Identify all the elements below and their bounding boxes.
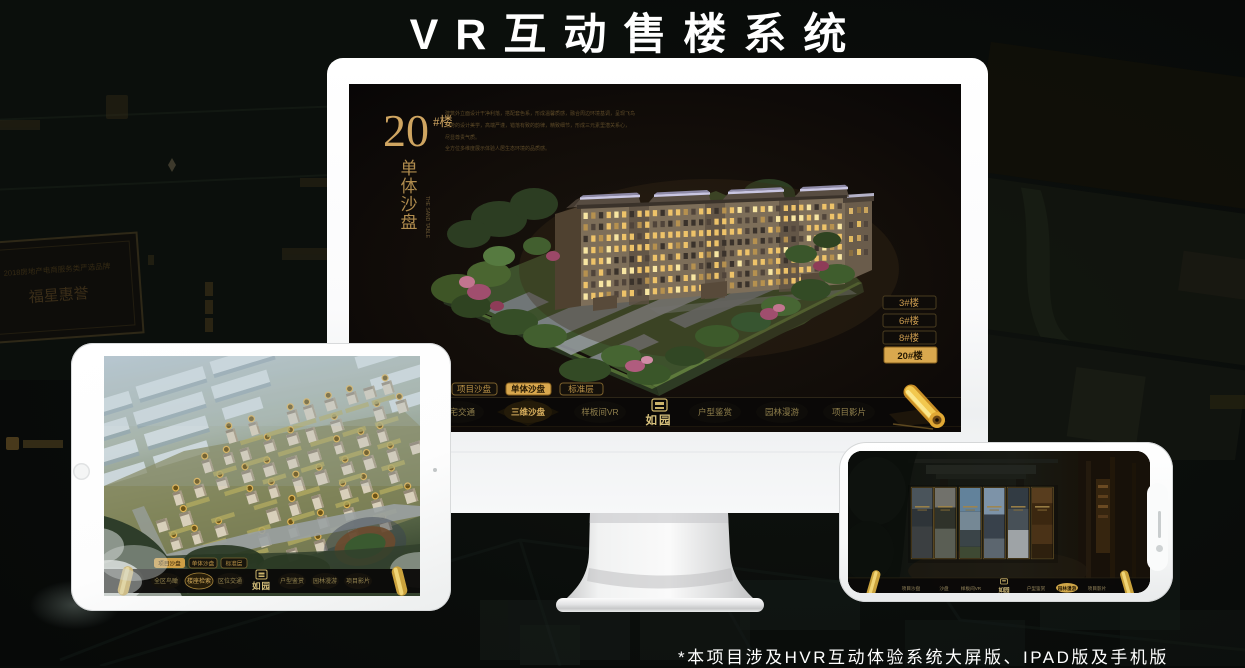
- svg-text:户型鉴赏: 户型鉴赏: [280, 577, 304, 585]
- svg-text:20#楼: 20#楼: [897, 350, 923, 362]
- svg-text:THE SAND TABLE: THE SAND TABLE: [424, 196, 430, 239]
- svg-text:项目影片: 项目影片: [832, 407, 866, 417]
- svg-text:之势的设计美学，高端严谨，错落有致的韵律，精致细节，形成三元: 之势的设计美学，高端严谨，错落有致的韵律，精致细节，形成三元素里潜关系心，: [445, 122, 630, 129]
- svg-text:园林漫游: 园林漫游: [1058, 585, 1077, 592]
- svg-text:6#楼: 6#楼: [899, 315, 920, 327]
- svg-text:项目沙盘: 项目沙盘: [457, 384, 492, 394]
- svg-text:建筑外立面设计干净利落，搭配套色系，形成温馨质感，融合周边环: 建筑外立面设计干净利落，搭配套色系，形成温馨质感，融合周边环境基调，呈现飞鸟: [445, 110, 635, 117]
- svg-text:单: 单: [401, 159, 418, 178]
- svg-text:如园: 如园: [252, 581, 271, 591]
- svg-text:沙盘: 沙盘: [939, 585, 949, 591]
- svg-text:标准层: 标准层: [226, 560, 243, 568]
- svg-text:如园: 如园: [998, 586, 1010, 593]
- svg-text:园林漫游: 园林漫游: [765, 407, 800, 417]
- svg-text:区位交通: 区位交通: [218, 577, 242, 585]
- svg-text:楼座检索: 楼座检索: [187, 577, 211, 585]
- svg-text:沙: 沙: [401, 195, 418, 214]
- svg-text:样板间VR: 样板间VR: [581, 407, 618, 417]
- svg-text:8#楼: 8#楼: [899, 332, 920, 344]
- svg-text:标准层: 标准层: [568, 384, 594, 394]
- svg-text:尽显尊贵气质。: 尽显尊贵气质。: [445, 134, 480, 141]
- svg-text:园林漫游: 园林漫游: [313, 577, 337, 585]
- svg-text:盘: 盘: [401, 213, 418, 232]
- svg-text:三维沙盘: 三维沙盘: [511, 407, 546, 417]
- svg-text:20: 20: [383, 105, 429, 156]
- svg-text:单体沙盘: 单体沙盘: [192, 560, 215, 568]
- svg-text:3#楼: 3#楼: [899, 297, 920, 309]
- svg-text:如园: 如园: [646, 413, 673, 427]
- svg-text:项目影片: 项目影片: [346, 577, 370, 585]
- svg-text:户型鉴赏: 户型鉴赏: [698, 407, 732, 417]
- svg-text:体: 体: [401, 177, 418, 196]
- svg-text:项目沙盘: 项目沙盘: [902, 585, 921, 592]
- svg-text:全方位多维度展示体验人居生态环境的品质感。: 全方位多维度展示体验人居生态环境的品质感。: [445, 145, 550, 152]
- svg-text:样板间VR: 样板间VR: [961, 585, 982, 592]
- svg-text:单体沙盘: 单体沙盘: [511, 384, 546, 394]
- svg-text:户型鉴赏: 户型鉴赏: [1027, 585, 1046, 592]
- svg-text:项目影片: 项目影片: [1088, 585, 1107, 592]
- svg-text:全区鸟瞰: 全区鸟瞰: [154, 577, 178, 585]
